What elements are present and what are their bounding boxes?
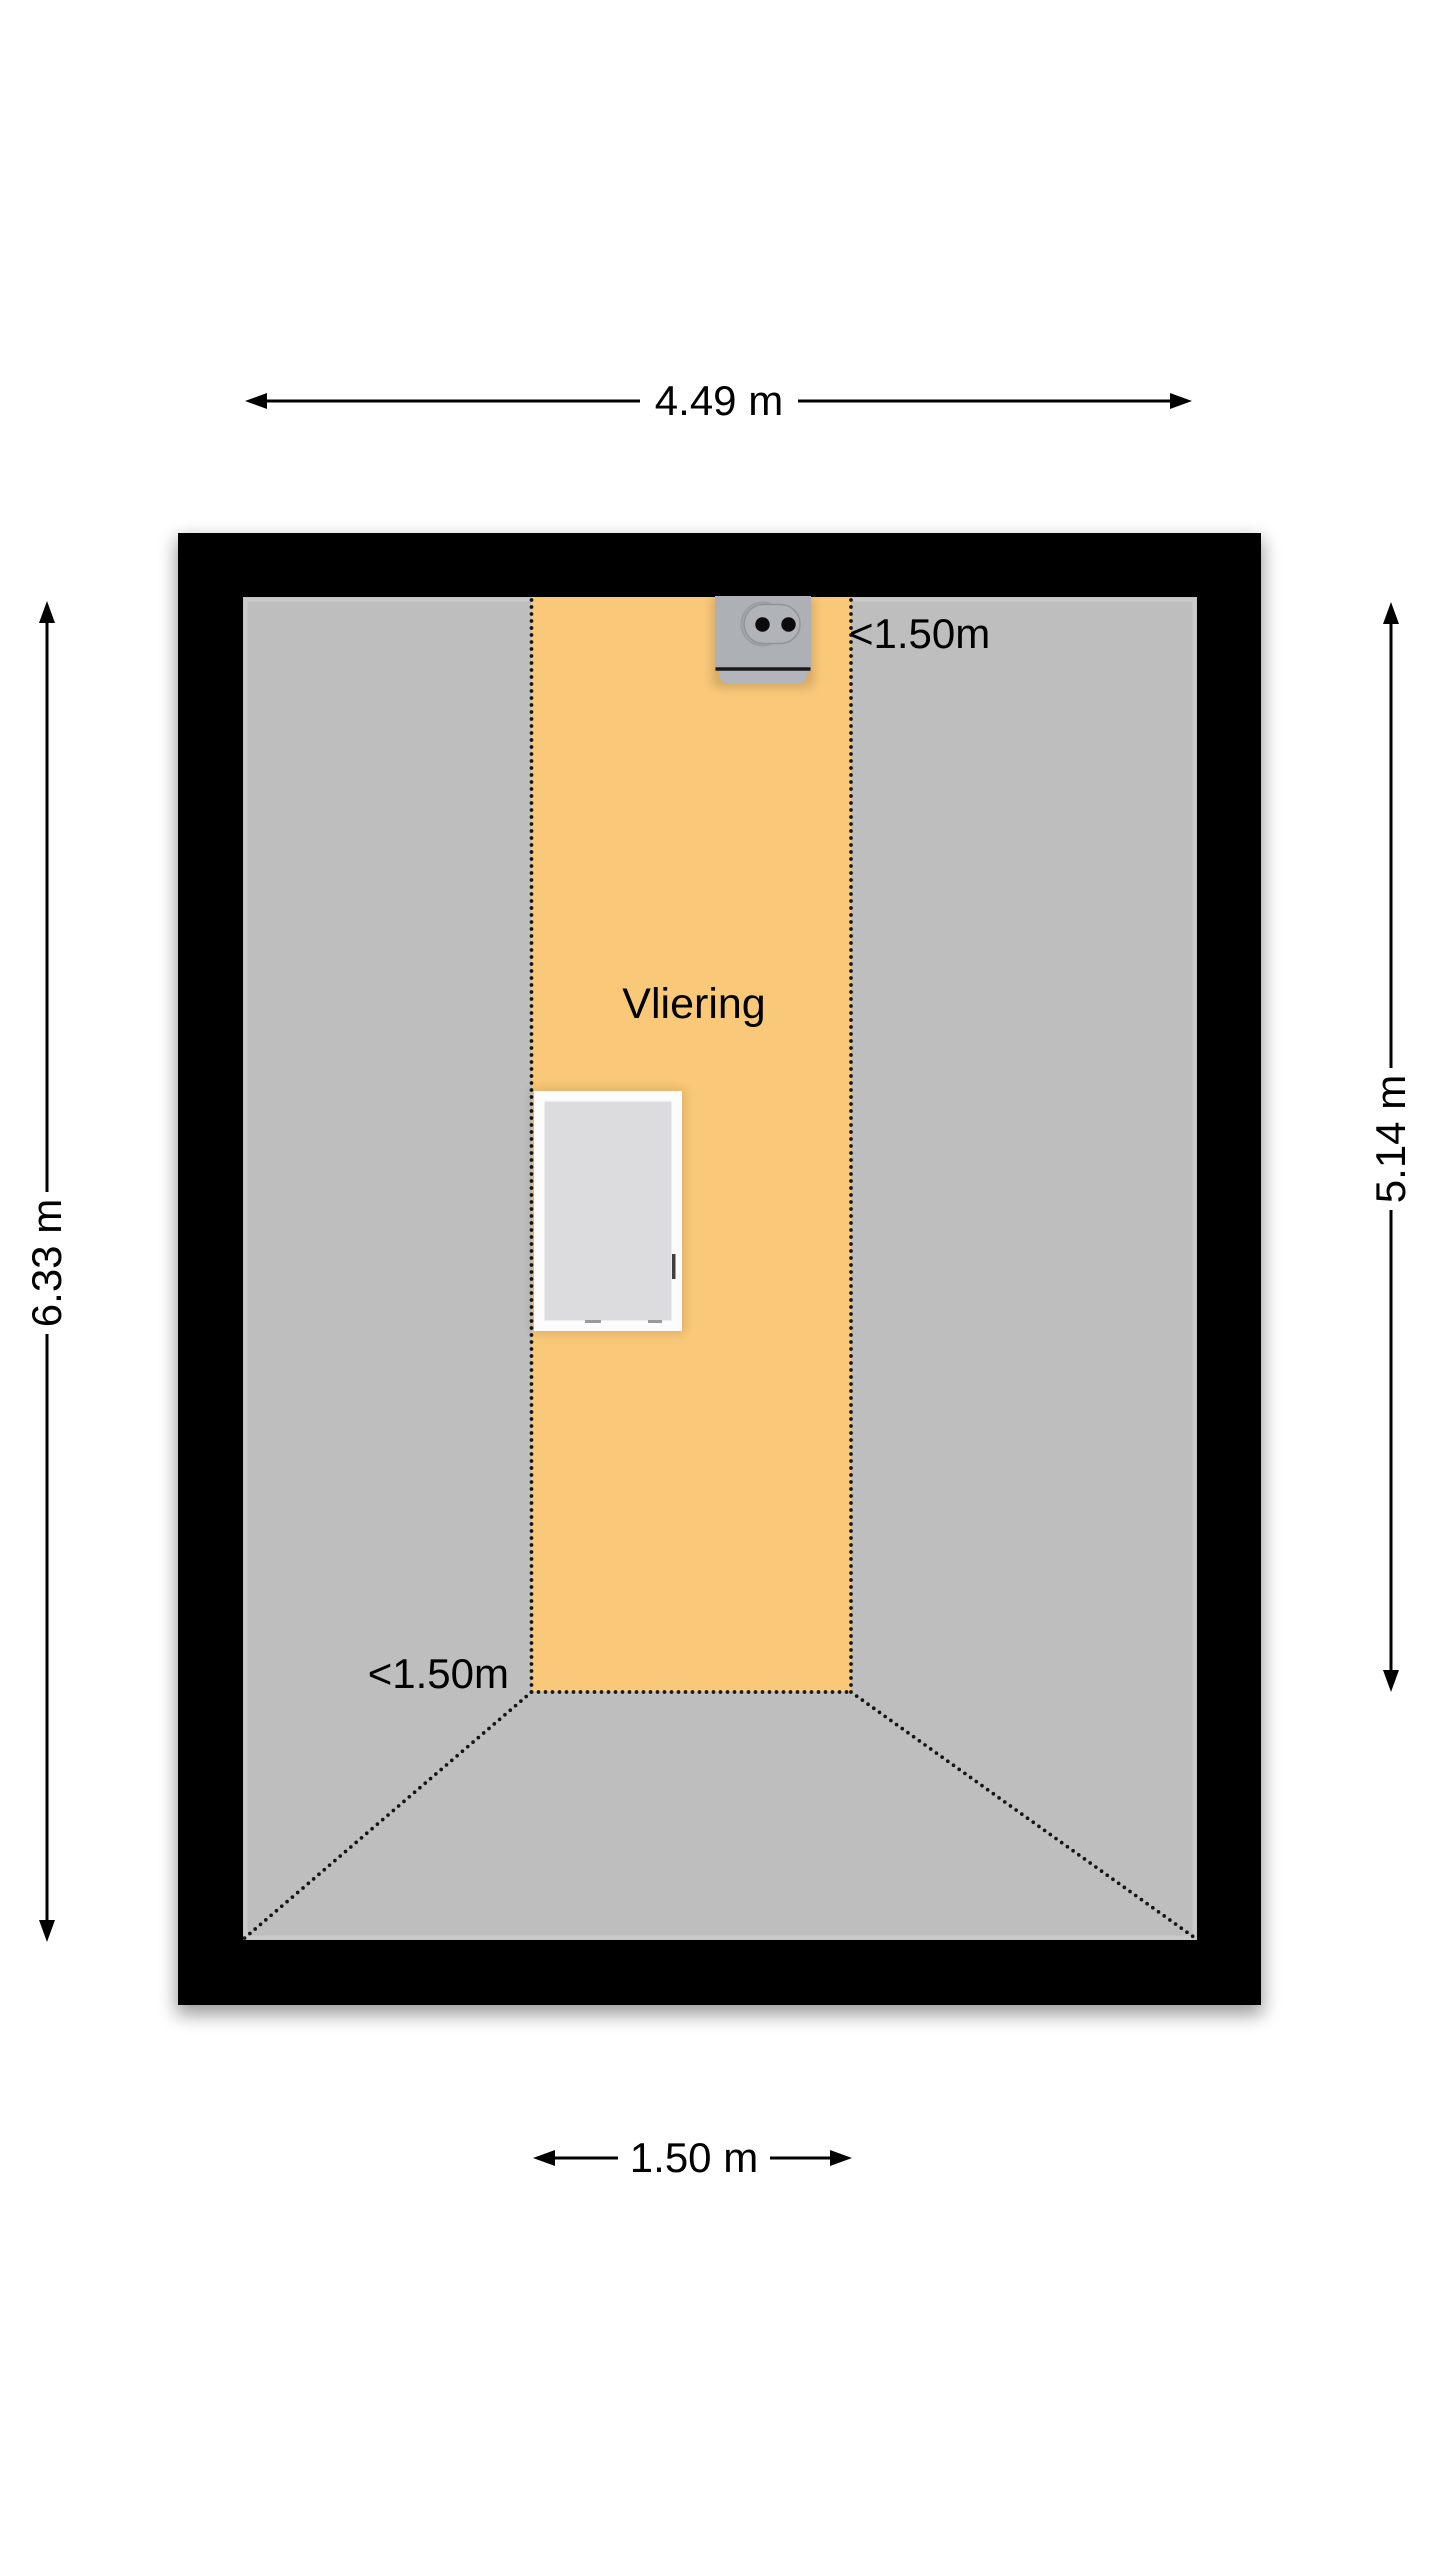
svg-text:Vliering: Vliering	[622, 980, 765, 1028]
svg-text:<1.50m: <1.50m	[849, 610, 990, 657]
svg-text:1.50 m: 1.50 m	[630, 2134, 758, 2181]
svg-text:4.49 m: 4.49 m	[655, 377, 783, 424]
svg-text:<1.50m: <1.50m	[368, 1650, 509, 1697]
svg-text:5.14 m: 5.14 m	[1367, 1075, 1414, 1203]
svg-text:6.33 m: 6.33 m	[23, 1199, 70, 1327]
